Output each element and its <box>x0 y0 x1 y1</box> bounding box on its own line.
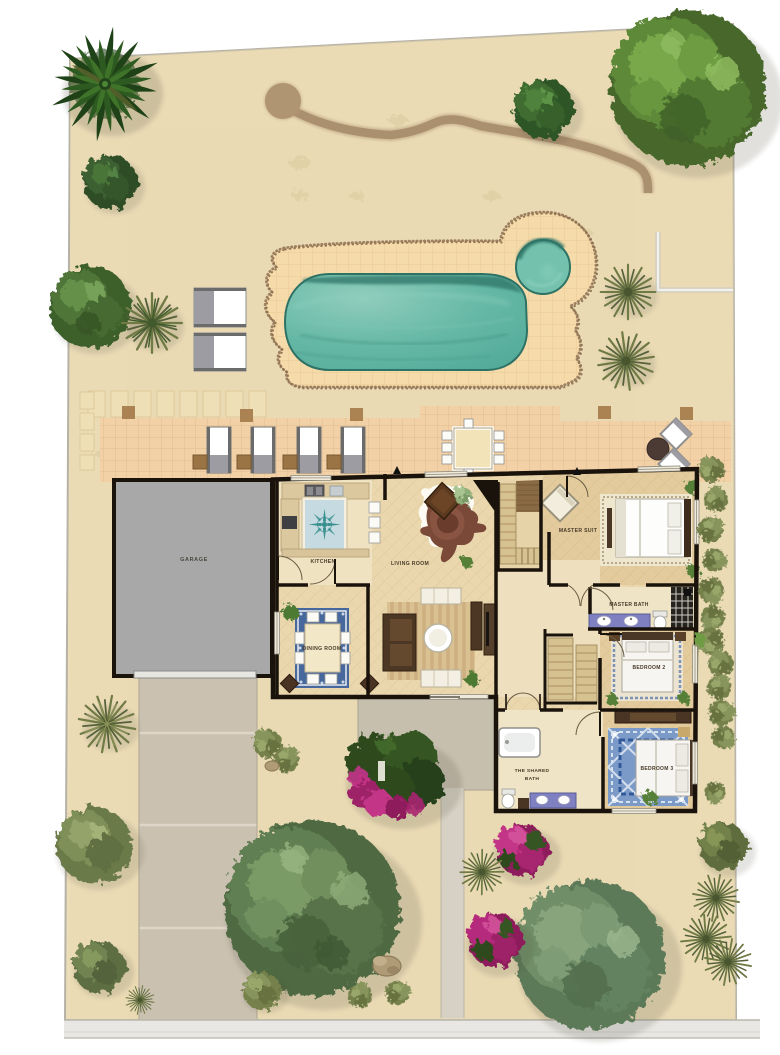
svg-text:THE SHARED: THE SHARED <box>515 768 550 774</box>
svg-text:MASTER BATH: MASTER BATH <box>609 602 648 608</box>
svg-text:BATH: BATH <box>525 776 540 782</box>
svg-text:MASTER SUIT: MASTER SUIT <box>559 528 598 534</box>
svg-text:GARAGE: GARAGE <box>180 557 208 563</box>
svg-text:BEDROOM 2: BEDROOM 2 <box>633 665 666 671</box>
svg-text:KITCHEN: KITCHEN <box>310 559 335 565</box>
svg-text:DINING ROOM: DINING ROOM <box>303 646 342 652</box>
svg-text:LIVING ROOM: LIVING ROOM <box>391 561 429 567</box>
svg-text:BEDROOM 3: BEDROOM 3 <box>641 766 674 772</box>
